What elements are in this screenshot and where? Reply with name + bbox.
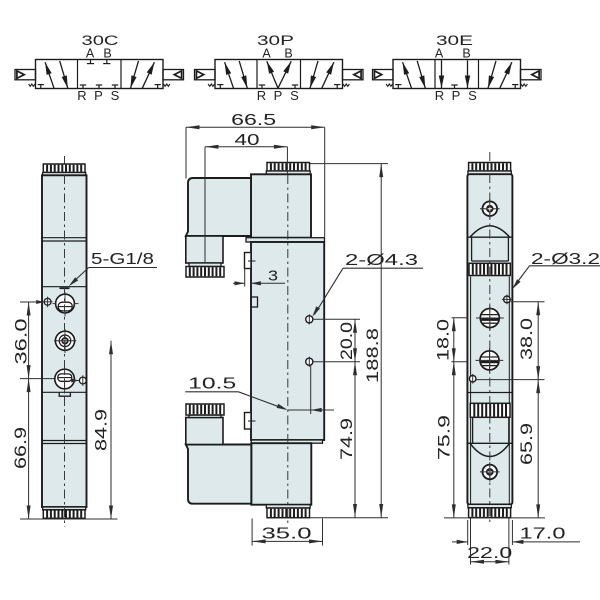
svg-text:20.0: 20.0 — [338, 322, 356, 360]
svg-text:17.0: 17.0 — [520, 526, 566, 543]
svg-text:66.9: 66.9 — [12, 427, 30, 469]
svg-text:S: S — [111, 88, 120, 103]
svg-text:74.9: 74.9 — [338, 418, 356, 460]
svg-text:P: P — [274, 88, 283, 103]
svg-text:38.0: 38.0 — [518, 318, 536, 360]
svg-text:3: 3 — [268, 268, 278, 285]
svg-text:22.0: 22.0 — [467, 545, 512, 562]
svg-text:A: A — [435, 47, 444, 61]
svg-text:35.0: 35.0 — [262, 525, 312, 542]
svg-text:66.5: 66.5 — [231, 112, 276, 129]
svg-text:S: S — [290, 88, 299, 103]
svg-text:A: A — [86, 47, 95, 61]
svg-text:A: A — [262, 47, 271, 61]
svg-text:40: 40 — [235, 132, 260, 149]
svg-text:65.9: 65.9 — [518, 423, 536, 465]
svg-text:R: R — [77, 88, 86, 103]
svg-text:P: P — [94, 88, 103, 103]
svg-text:188.8: 188.8 — [364, 328, 382, 383]
svg-text:36.0: 36.0 — [13, 319, 31, 365]
svg-text:B: B — [284, 47, 292, 61]
svg-text:B: B — [103, 47, 111, 61]
svg-text:18.0: 18.0 — [435, 319, 453, 361]
svg-text:10.5: 10.5 — [188, 375, 236, 392]
svg-text:5-G1/8: 5-G1/8 — [91, 251, 154, 268]
svg-text:84.9: 84.9 — [93, 409, 111, 451]
svg-text:S: S — [468, 88, 477, 103]
svg-text:R: R — [257, 88, 266, 103]
svg-text:P: P — [452, 88, 461, 103]
svg-text:B: B — [462, 47, 470, 61]
svg-text:R: R — [435, 88, 444, 103]
svg-text:75.9: 75.9 — [436, 415, 454, 460]
